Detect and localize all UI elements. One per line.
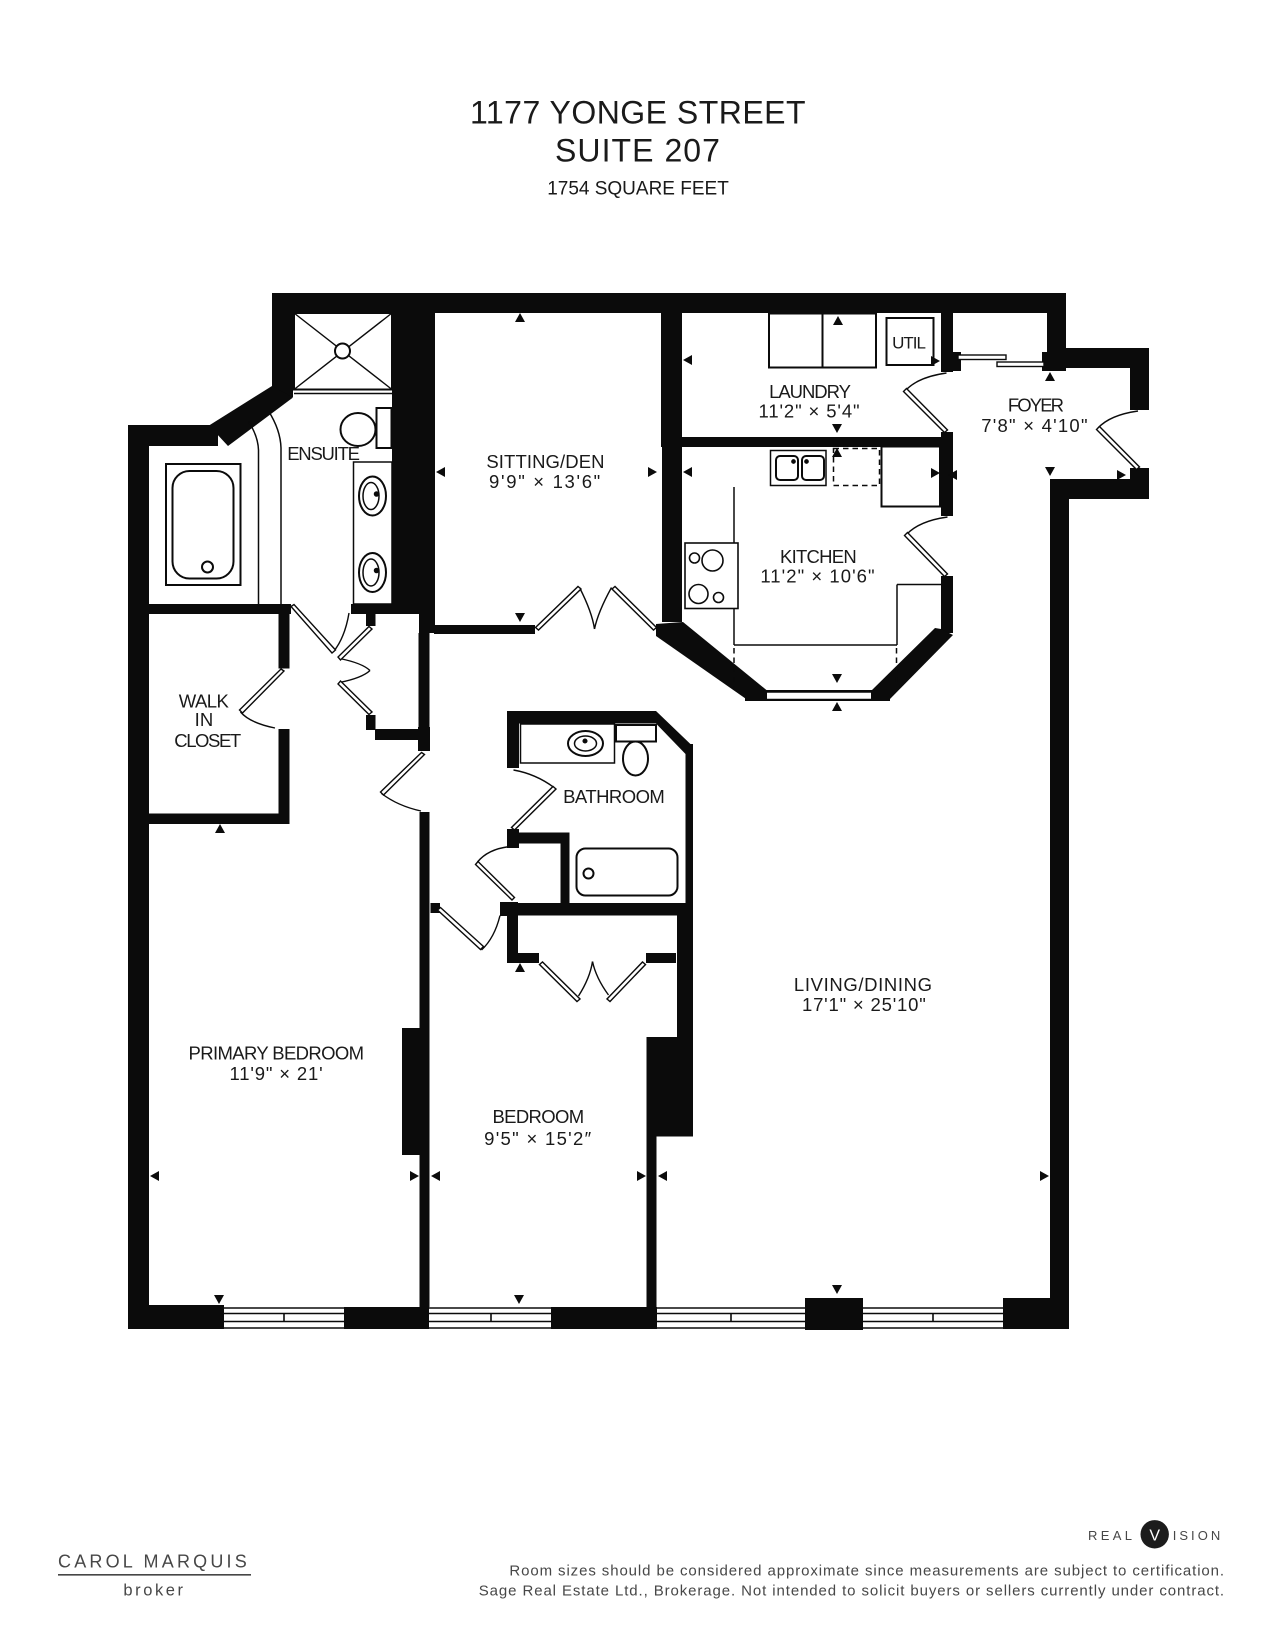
svg-text:FOYER: FOYER <box>1008 395 1064 416</box>
svg-text:7'8" × 4'10": 7'8" × 4'10" <box>981 415 1089 436</box>
svg-text:broker: broker <box>123 1582 185 1600</box>
svg-text:CAROL MARQUIS: CAROL MARQUIS <box>58 1552 250 1572</box>
svg-text:1177 YONGE STREET: 1177 YONGE STREET <box>470 95 806 131</box>
svg-text:17'1" × 25'10": 17'1" × 25'10" <box>802 994 927 1015</box>
svg-text:IN: IN <box>195 709 214 730</box>
svg-text:9'9" × 13'6": 9'9" × 13'6" <box>489 471 602 492</box>
svg-text:BATHROOM: BATHROOM <box>563 786 664 807</box>
svg-text:9'5" × 15'2″: 9'5" × 15'2″ <box>484 1128 592 1149</box>
svg-text:UTIL: UTIL <box>892 334 925 353</box>
svg-text:REAL: REAL <box>1088 1528 1135 1543</box>
svg-text:PRIMARY BEDROOM: PRIMARY BEDROOM <box>189 1043 364 1064</box>
svg-text:Room sizes should be considere: Room sizes should be considered approxim… <box>509 1563 1225 1580</box>
svg-text:SITTING/DEN: SITTING/DEN <box>486 451 604 472</box>
svg-text:LAUNDRY: LAUNDRY <box>769 381 850 402</box>
svg-text:BEDROOM: BEDROOM <box>492 1106 583 1127</box>
svg-text:ENSUITE: ENSUITE <box>287 443 359 464</box>
svg-text:CLOSET: CLOSET <box>174 730 241 751</box>
svg-text:ISION: ISION <box>1173 1528 1224 1543</box>
svg-text:11'2" × 10'6": 11'2" × 10'6" <box>760 566 875 587</box>
svg-text:11'2" × 5'4": 11'2" × 5'4" <box>759 401 861 422</box>
svg-text:V: V <box>1149 1528 1160 1545</box>
svg-text:1754 SQUARE FEET: 1754 SQUARE FEET <box>547 179 729 200</box>
svg-text:11'9" × 21': 11'9" × 21' <box>229 1063 323 1084</box>
svg-text:Sage Real Estate Ltd., Brokera: Sage Real Estate Ltd., Brokerage. Not in… <box>479 1583 1225 1600</box>
svg-text:LIVING/DINING: LIVING/DINING <box>794 974 933 995</box>
svg-text:SUITE 207: SUITE 207 <box>555 133 721 169</box>
svg-text:KITCHEN: KITCHEN <box>780 546 856 567</box>
